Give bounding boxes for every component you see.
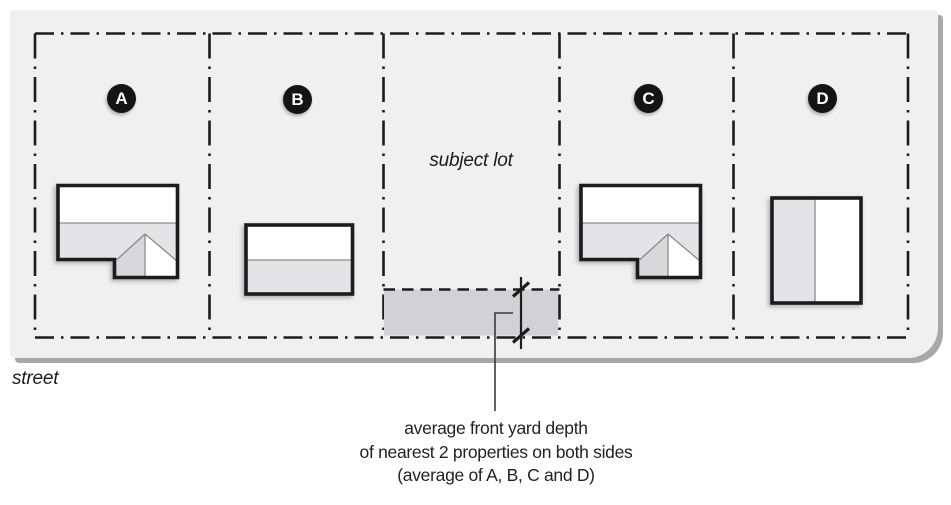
lot-badge-c: C — [634, 84, 663, 113]
annotation-caption: average front yard depth of nearest 2 pr… — [296, 417, 696, 488]
subject-lot-label: subject lot — [371, 150, 571, 172]
street-label: street — [12, 368, 58, 390]
lot-badge-a: A — [107, 84, 136, 113]
annotation-line-3: (average of A, B, C and D) — [296, 464, 696, 488]
annotation-line-2: of nearest 2 properties on both sides — [296, 441, 696, 465]
lot-badge-d-label: D — [816, 89, 828, 109]
lot-badge-b-label: B — [291, 90, 303, 110]
annotation-line-1: average front yard depth — [296, 417, 696, 441]
city-block — [10, 10, 938, 358]
zoning-diagram: A B C D subject lot street average front… — [0, 0, 951, 505]
lot-badge-a-label: A — [115, 89, 127, 109]
lot-badge-d: D — [808, 84, 837, 113]
lot-badge-b: B — [283, 85, 312, 114]
lot-badge-c-label: C — [642, 89, 654, 109]
